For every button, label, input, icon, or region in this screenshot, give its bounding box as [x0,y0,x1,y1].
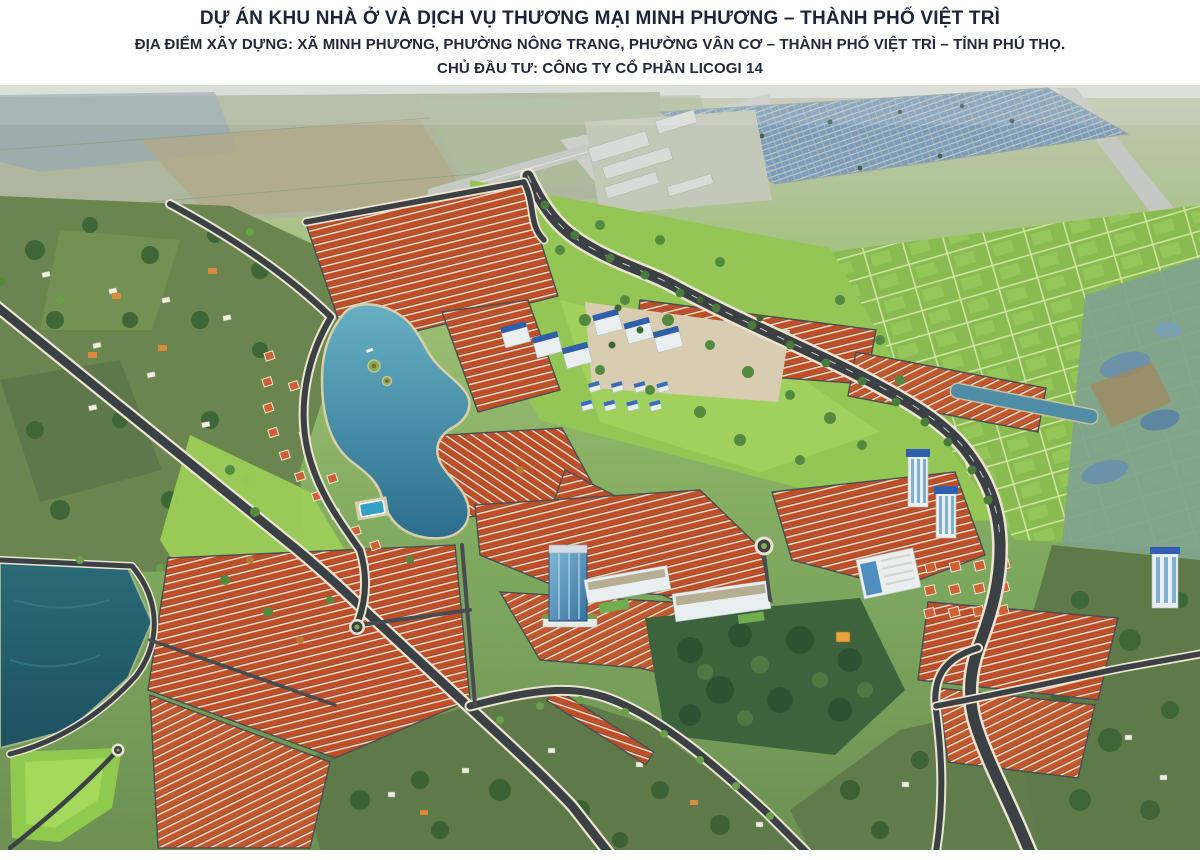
project-location: ĐỊA ĐIỂM XÂY DỰNG: XÃ MINH PHƯƠNG, PHƯỜN… [135,32,1066,57]
atmosphere-haze [0,85,1200,125]
poster-header: DỰ ÁN KHU NHÀ Ở VÀ DỊCH VỤ THƯƠNG MẠI MI… [0,0,1200,85]
roundabout [755,537,774,556]
island-gazebo [372,364,376,368]
aerial-masterplan-rendering [0,85,1200,850]
project-poster: DỰ ÁN KHU NHÀ Ở VÀ DỊCH VỤ THƯƠNG MẠI MI… [0,0,1200,860]
industrial-zone [585,110,772,215]
project-title: DỰ ÁN KHU NHÀ Ở VÀ DỊCH VỤ THƯƠNG MẠI MI… [200,6,1000,32]
park-pavilion [836,632,850,642]
island-gazebo [385,379,389,383]
project-investor: CHỦ ĐẦU TƯ: CÔNG TY CỔ PHẦN LICOGI 14 [437,57,763,81]
roundabout [112,744,125,757]
roundabout [349,619,365,635]
edge-tower [1150,547,1180,608]
